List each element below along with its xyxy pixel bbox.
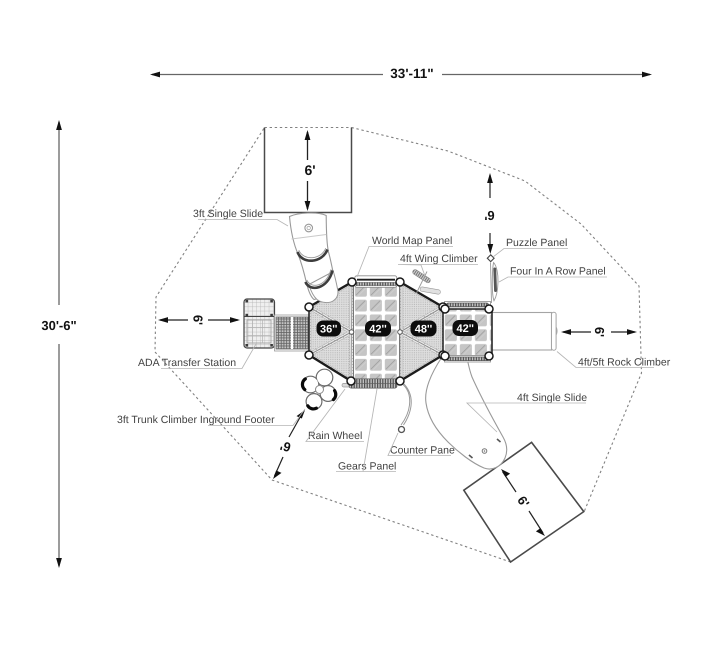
svg-text:Puzzle Panel: Puzzle Panel [506,237,567,249]
svg-text:3ft Trunk Climber Inground Foo: 3ft Trunk Climber Inground Footer [117,414,275,426]
svg-text:42'': 42'' [369,324,387,336]
svg-text:4ft Wing Climber: 4ft Wing Climber [400,253,478,265]
svg-text:3ft Single Slide: 3ft Single Slide [193,208,263,220]
svg-text:6': 6' [304,162,315,178]
svg-text:World Map Panel: World Map Panel [372,235,452,247]
svg-text:Counter Pane: Counter Pane [390,445,455,457]
svg-text:4ft Single Slide: 4ft Single Slide [517,392,587,404]
svg-text:6': 6' [191,315,206,325]
svg-text:4ft/5ft Rock Climber: 4ft/5ft Rock Climber [578,357,671,369]
svg-text:30'-6": 30'-6" [41,318,76,333]
svg-text:48'': 48'' [415,324,433,336]
svg-text:42'': 42'' [456,323,474,335]
svg-text:Four In A Row Panel: Four In A Row Panel [510,266,606,278]
svg-text:Rain Wheel: Rain Wheel [308,430,362,442]
svg-text:33'-11": 33'-11" [390,66,433,81]
svg-text:36'': 36'' [320,324,338,336]
svg-text:Gears Panel: Gears Panel [338,461,396,473]
svg-text:ADA Transfer Station: ADA Transfer Station [138,357,236,369]
svg-text:6': 6' [592,327,607,337]
svg-text:6': 6' [484,208,494,223]
